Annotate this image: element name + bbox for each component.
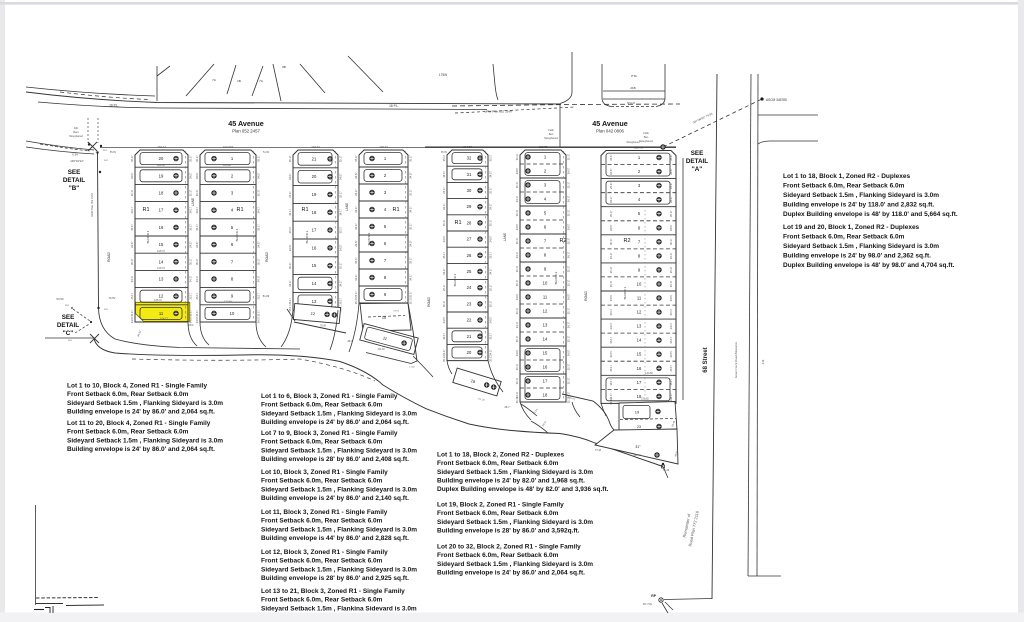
svg-text:123.46: 123.46 (223, 164, 231, 167)
svg-text:34.17: 34.17 (257, 275, 261, 282)
svg-text:34.17: 34.17 (189, 206, 193, 213)
svg-text:Front Setback 6.0m, Rear Setba: Front Setback 6.0m, Rear Setback 6.0m (437, 552, 559, 559)
svg-text:35.17: 35.17 (669, 210, 673, 217)
svg-text:34.57: 34.57 (515, 293, 519, 300)
svg-text:SEE: SEE (62, 314, 75, 321)
svg-text:34.57: 34.57 (609, 294, 613, 301)
svg-text:ASCM 345785: ASCM 345785 (766, 98, 787, 102)
svg-text:25.17: 25.17 (609, 365, 613, 372)
svg-text:35.17: 35.17 (189, 224, 193, 231)
svg-text:34.17: 34.17 (288, 209, 292, 216)
svg-text:34.17: 34.17 (409, 274, 413, 281)
svg-text:Sideyard Setback 1.5m , Flanki: Sideyard Setback 1.5m , Flanking Sideyar… (261, 526, 417, 533)
svg-text:35.17: 35.17 (130, 310, 134, 317)
svg-text:13: 13 (543, 323, 548, 328)
svg-text:Duplex Building envelope is 48: Duplex Building envelope is 48' by 82.0'… (437, 486, 609, 493)
svg-text:RP: RP (651, 594, 656, 598)
svg-text:77.43: 77.43 (595, 449, 602, 452)
svg-text:25.17: 25.17 (515, 363, 519, 370)
svg-text:24.17: 24.17 (609, 322, 613, 329)
svg-text:34.17: 34.17 (489, 203, 493, 210)
svg-text:Lot 1 to 6, Block 3, Zoned R1: Lot 1 to 6, Block 3, Zoned R1 - Single F… (261, 393, 398, 400)
svg-text:14: 14 (637, 338, 642, 343)
svg-text:135.72: 135.72 (154, 299, 162, 302)
svg-text:134.36: 134.36 (377, 348, 385, 351)
svg-text:35.17: 35.17 (669, 379, 673, 386)
svg-text:11: 11 (637, 296, 642, 301)
svg-text:35.17: 35.17 (354, 155, 358, 162)
svg-text:24.57: 24.57 (288, 244, 292, 251)
svg-text:Sloughaned: Sloughaned (639, 139, 653, 143)
svg-text:34.17: 34.17 (567, 195, 571, 202)
svg-text:34.57: 34.57 (339, 173, 343, 180)
svg-text:URW Plan 052 2178: URW Plan 052 2178 (90, 193, 94, 217)
svg-text:Lot 1 to 10, Block 4, Zoned R1: Lot 1 to 10, Block 4, Zoned R1 - Single … (67, 383, 208, 390)
svg-text:Plan 042 0806: Plan 042 0806 (596, 129, 624, 134)
svg-text:18: 18 (543, 393, 548, 398)
svg-text:104.007: 104.007 (223, 145, 234, 149)
svg-text:45 Avenue: 45 Avenue (228, 119, 263, 128)
svg-text:10: 10 (382, 316, 386, 320)
svg-text:BLOCK 3: BLOCK 3 (367, 232, 371, 245)
svg-text:34.17: 34.17 (339, 280, 343, 287)
svg-text:24.57: 24.57 (442, 235, 446, 242)
svg-text:17: 17 (159, 208, 164, 213)
svg-text:34.17: 34.17 (130, 275, 134, 282)
svg-text:BLOCK 4: BLOCK 4 (146, 230, 150, 243)
svg-text:35.17: 35.17 (409, 155, 413, 162)
svg-text:24.17: 24.17 (489, 349, 493, 356)
svg-text:104.33: 104.33 (311, 145, 320, 149)
svg-text:35.17: 35.17 (257, 155, 261, 162)
svg-text:Sideyard Setback 1.5m , Flanki: Sideyard Setback 1.5m , Flanking Sideyar… (261, 410, 417, 417)
svg-text:73.74: 73.74 (393, 311, 399, 313)
svg-text:25.17: 25.17 (130, 189, 134, 196)
svg-text:25.17: 25.17 (339, 191, 343, 198)
svg-text:34.17: 34.17 (442, 268, 446, 275)
svg-text:Sideyard Setback 1.5m , Flanki: Sideyard Setback 1.5m , Flanking Sideyar… (67, 400, 223, 407)
svg-text:Front Setback 6.0m, Rear Setba: Front Setback 6.0m, Rear Setback 6.0m (261, 478, 383, 485)
svg-text:20: 20 (312, 174, 317, 179)
svg-text:123.46: 123.46 (224, 301, 232, 304)
svg-text:35.0V: 35.0V (441, 151, 448, 154)
svg-text:18 P.L.: 18 P.L. (389, 104, 399, 108)
svg-text:35.17: 35.17 (257, 310, 261, 317)
svg-text:35.17: 35.17 (609, 238, 613, 245)
svg-text:19: 19 (159, 173, 164, 178)
svg-text:35.17: 35.17 (515, 237, 519, 244)
svg-text:34.17: 34.17 (354, 274, 358, 281)
svg-text:74.5V: 74.5V (109, 296, 116, 300)
svg-text:34.57: 34.57 (257, 316, 261, 323)
svg-text:24.17: 24.17 (515, 321, 519, 328)
svg-text:35.17: 35.17 (567, 279, 571, 286)
svg-text:25.17: 25.17 (409, 189, 413, 196)
svg-text:Building envelope is 24' by 86: Building envelope is 24' by 86.0' and 2,… (261, 495, 409, 502)
svg-text:Government Road Allowance: Government Road Allowance (734, 341, 738, 378)
svg-text:25.17: 25.17 (669, 365, 673, 372)
svg-text:Front Setback 6.0m, Rear Setba: Front Setback 6.0m, Rear Setback 6.0m (437, 460, 559, 467)
svg-text:20: 20 (467, 350, 472, 355)
svg-text:Sideyard Setback 1.5m , Flanki: Sideyard Setback 1.5m , Flanking Sideyar… (437, 519, 593, 526)
svg-text:Front Setback 6.0m, Rear Setba: Front Setback 6.0m, Rear Setback 6.0m (261, 518, 383, 525)
svg-text:34.17: 34.17 (489, 268, 493, 275)
svg-text:34.17: 34.17 (339, 209, 343, 216)
svg-text:34.57: 34.57 (567, 167, 571, 174)
svg-text:Lot 1 to 18, Block 1, Zoned R2: Lot 1 to 18, Block 1, Zoned R2 - Duplexe… (783, 173, 911, 180)
svg-text:34.57: 34.57 (669, 294, 673, 301)
svg-text:21: 21 (467, 334, 472, 339)
svg-text:125.72: 125.72 (157, 267, 165, 270)
svg-text:24.57: 24.57 (669, 224, 673, 231)
svg-text:35.17: 35.17 (339, 262, 343, 269)
svg-text:104.17: 104.17 (157, 145, 166, 149)
svg-text:Building envelope is 24' by 86: Building envelope is 24' by 86.0' and 2,… (67, 446, 215, 453)
svg-text:10: 10 (637, 282, 642, 287)
svg-text:R1: R1 (142, 207, 149, 213)
svg-text:ROAD: ROAD (584, 291, 588, 301)
svg-text:MSCM: MSCM (627, 102, 635, 105)
svg-text:Lot 20 to 32, Block 2, Zoned R: Lot 20 to 32, Block 2, Zoned R1 - Single… (437, 544, 581, 551)
svg-text:24.57: 24.57 (567, 223, 571, 230)
svg-text:25.17: 25.17 (567, 181, 571, 188)
svg-text:23: 23 (637, 425, 641, 429)
svg-text:Lot 12, Block 3, Zoned R1 - Si: Lot 12, Block 3, Zoned R1 - Single Famil… (261, 549, 388, 556)
svg-text:URW Plan 052 3149: URW Plan 052 3149 (484, 110, 512, 114)
svg-text:Sideyard Setback 1.5m , Flanki: Sideyard Setback 1.5m , Flanking Sideyar… (783, 192, 939, 199)
svg-text:PG 7VA: PG 7VA (643, 602, 652, 606)
svg-text:R2: R2 (623, 238, 630, 244)
svg-text:25.17: 25.17 (567, 363, 571, 370)
svg-text:35.17: 35.17 (130, 258, 134, 265)
svg-text:24.57: 24.57 (257, 241, 261, 248)
svg-text:34.57: 34.57 (442, 171, 446, 178)
svg-text:Falls: Falls (548, 128, 554, 132)
svg-text:Building envelope is 24' by 11: Building envelope is 24' by 118.0' and 2… (783, 202, 934, 209)
svg-text:25.17: 25.17 (442, 187, 446, 194)
svg-text:21B: 21B (630, 86, 635, 90)
svg-text:24.57: 24.57 (195, 241, 199, 248)
svg-text:SEE: SEE (691, 150, 704, 157)
svg-text:LANE: LANE (503, 233, 507, 241)
svg-text:16: 16 (159, 225, 164, 230)
svg-text:6.34: 6.34 (72, 153, 78, 157)
svg-text:35.17: 35.17 (195, 224, 199, 231)
svg-text:34.57: 34.57 (515, 349, 519, 356)
svg-text:25.17: 25.17 (195, 292, 199, 299)
svg-text:BLOCK 2: BLOCK 2 (554, 271, 558, 284)
svg-text:35.17: 35.17 (515, 153, 519, 160)
svg-text:R1: R1 (301, 207, 308, 213)
svg-text:25.17: 25.17 (195, 189, 199, 196)
svg-text:35.17: 35.17 (515, 307, 519, 314)
svg-text:BLOCK 4: BLOCK 4 (235, 228, 239, 241)
svg-text:25.17: 25.17 (189, 189, 193, 196)
svg-text:R1: R1 (236, 207, 243, 213)
svg-text:19: 19 (635, 410, 640, 415)
svg-text:35.17: 35.17 (489, 333, 493, 340)
svg-text:12: 12 (543, 309, 548, 314)
svg-text:Building envelope is 28' by 86: Building envelope is 28' by 86.0' and 2,… (261, 575, 409, 582)
svg-text:Front Setback 6.0m, Rear Setba: Front Setback 6.0m, Rear Setback 6.0m (437, 510, 559, 517)
svg-text:35.17: 35.17 (354, 257, 358, 264)
svg-text:Sloughaned: Sloughaned (69, 134, 83, 138)
svg-text:15: 15 (312, 263, 317, 268)
svg-text:16: 16 (312, 245, 317, 250)
svg-text:35.17: 35.17 (442, 252, 446, 259)
svg-text:125.72: 125.72 (157, 250, 165, 253)
svg-text:24.57: 24.57 (189, 241, 193, 248)
svg-text:35.17: 35.17 (669, 238, 673, 245)
svg-text:20: 20 (159, 156, 164, 161)
svg-text:35.17: 35.17 (195, 310, 199, 317)
svg-text:24.57: 24.57 (130, 241, 134, 248)
svg-text:34.17: 34.17 (442, 203, 446, 210)
svg-text:35.17: 35.17 (354, 223, 358, 230)
svg-text:DETAIL: DETAIL (57, 322, 79, 329)
svg-text:34.17: 34.17 (515, 195, 519, 202)
svg-text:71.22: 71.22 (663, 468, 670, 472)
svg-text:35.17: 35.17 (489, 154, 493, 161)
svg-text:35.17: 35.17 (339, 155, 343, 162)
svg-text:34.17: 34.17 (409, 206, 413, 213)
svg-text:35.17: 35.17 (130, 155, 134, 162)
svg-text:34.57: 34.57 (489, 316, 493, 323)
svg-text:34.57: 34.57 (567, 293, 571, 300)
svg-text:Lot 19, Block 2, Zoned R1 - Si: Lot 19, Block 2, Zoned R1 - Single Famil… (437, 502, 564, 509)
svg-text:35.17: 35.17 (288, 155, 292, 162)
svg-text:24.57: 24.57 (409, 240, 413, 247)
svg-text:Sideyard Setback 1.5m , Flanki: Sideyard Setback 1.5m , Flanking Sideyar… (67, 437, 223, 444)
svg-text:24.17: 24.17 (669, 322, 673, 329)
svg-text:35.17: 35.17 (130, 224, 134, 231)
svg-text:104.17: 104.17 (160, 318, 168, 321)
svg-text:Sloughaned: Sloughaned (626, 141, 640, 144)
svg-text:35.17: 35.17 (609, 280, 613, 287)
svg-text:34.57: 34.57 (130, 316, 134, 323)
svg-text:25.17: 25.17 (669, 266, 673, 273)
svg-text:35.17: 35.17 (567, 209, 571, 216)
svg-text:26.7: 26.7 (504, 405, 510, 409)
svg-text:35.17: 35.17 (189, 155, 193, 162)
svg-text:Building envelope is 44' by 86: Building envelope is 44' by 86.0' and 2,… (261, 535, 409, 542)
svg-text:BLOCK 3: BLOCK 3 (305, 230, 309, 243)
svg-text:Sideyard Setback 1.5m , Flanki: Sideyard Setback 1.5m , Flanking Sideyar… (437, 469, 593, 476)
svg-text:35.17: 35.17 (195, 155, 199, 162)
svg-text:16: 16 (543, 365, 548, 370)
svg-text:11: 11 (543, 295, 548, 300)
svg-text:24.17: 24.17 (442, 349, 446, 356)
svg-text:24.17: 24.17 (567, 321, 571, 328)
svg-text:35.17: 35.17 (609, 336, 613, 343)
svg-text:35.17: 35.17 (567, 307, 571, 314)
svg-text:34.17: 34.17 (567, 251, 571, 258)
svg-text:Front Setback 6.0m, Rear Setba: Front Setback 6.0m, Rear Setback 6.0m (261, 597, 383, 604)
svg-text:25.17: 25.17 (609, 266, 613, 273)
svg-text:Lot 10, Block 3, Zoned R1 - Si: Lot 10, Block 3, Zoned R1 - Single Famil… (261, 469, 388, 476)
svg-text:35.17: 35.17 (515, 396, 519, 403)
svg-text:25.17: 25.17 (567, 265, 571, 272)
svg-text:Building envelope is 24' by 86: Building envelope is 24' by 86.0' and 2,… (67, 408, 215, 415)
svg-text:133.50: 133.50 (645, 372, 653, 375)
svg-text:25.17: 25.17 (515, 181, 519, 188)
svg-text:Sideyard Setback 1.5m , Flanki: Sideyard Setback 1.5m , Flanking Sideyar… (261, 447, 417, 454)
svg-text:31: 31 (467, 172, 472, 177)
svg-text:ROAD: ROAD (265, 252, 269, 262)
svg-text:68 Street: 68 Street (703, 347, 709, 372)
svg-text:"A": "A" (692, 166, 703, 173)
svg-text:Building envelope is 24' by 98: Building envelope is 24' by 98.0' and 2,… (783, 253, 931, 260)
svg-text:12: 12 (159, 294, 164, 299)
svg-text:18: 18 (312, 210, 317, 215)
svg-text:35.17: 35.17 (515, 209, 519, 216)
svg-text:35.17: 35.17 (567, 335, 571, 342)
svg-text:Duplex Building envelope is 48: Duplex Building envelope is 48' by 98.0'… (783, 262, 955, 269)
svg-text:BLOCK 1: BLOCK 1 (623, 286, 627, 299)
svg-text:13: 13 (637, 324, 642, 329)
svg-text:35.17: 35.17 (515, 377, 519, 384)
svg-text:175W: 175W (439, 73, 447, 77)
svg-text:35.17: 35.17 (609, 398, 613, 405)
svg-text:45 Avenue: 45 Avenue (592, 119, 627, 128)
svg-text:14: 14 (312, 281, 317, 286)
svg-text:F&I: F&I (74, 126, 78, 130)
svg-text:25.17: 25.17 (409, 291, 413, 298)
svg-text:Front Setback 6.0m, Rear Setba: Front Setback 6.0m, Rear Setback 6.0m (783, 234, 905, 241)
svg-text:1B: 1B (237, 79, 241, 83)
svg-text:130°16'22": 130°16'22" (70, 159, 84, 163)
svg-text:35.17: 35.17 (669, 280, 673, 287)
svg-text:35.17: 35.17 (288, 226, 292, 233)
svg-text:34.57: 34.57 (189, 172, 193, 179)
svg-text:78.56: 78.56 (320, 325, 327, 328)
svg-text:35.17: 35.17 (567, 237, 571, 244)
svg-text:DETAIL: DETAIL (686, 158, 708, 165)
svg-text:35.17: 35.17 (669, 308, 673, 315)
svg-text:30: 30 (467, 188, 472, 193)
svg-text:11: 11 (159, 311, 164, 316)
svg-text:24.57: 24.57 (515, 223, 519, 230)
svg-text:12: 12 (637, 310, 642, 315)
svg-text:"C": "C" (63, 330, 74, 337)
svg-text:25.17: 25.17 (257, 292, 261, 299)
svg-text:34.57: 34.57 (515, 167, 519, 174)
svg-text:Ban: Ban (549, 132, 554, 136)
svg-text:34.57: 34.57 (609, 168, 613, 175)
svg-text:25.17: 25.17 (339, 298, 343, 305)
svg-text:35.17: 35.17 (257, 224, 261, 231)
svg-text:51.09: 51.09 (263, 294, 270, 298)
svg-text:35.17: 35.17 (442, 154, 446, 161)
svg-text:34.57: 34.57 (442, 316, 446, 323)
svg-text:34.57: 34.57 (189, 316, 193, 323)
svg-text:26: 26 (467, 253, 472, 258)
svg-text:Front Setback 6.0m, Rear Setba: Front Setback 6.0m, Rear Setback 6.0m (261, 558, 383, 565)
svg-text:34.17: 34.17 (195, 206, 199, 213)
svg-text:24: 24 (467, 285, 472, 290)
svg-text:34.17: 34.17 (189, 275, 193, 282)
svg-text:35.17: 35.17 (442, 333, 446, 340)
svg-text:34.17: 34.17 (288, 280, 292, 287)
svg-text:17: 17 (312, 228, 317, 233)
svg-text:35.17: 35.17 (195, 258, 199, 265)
svg-text:35.17: 35.17 (442, 300, 446, 307)
svg-text:24.57: 24.57 (354, 240, 358, 247)
svg-text:25.17: 25.17 (354, 189, 358, 196)
svg-text:LANE: LANE (191, 198, 195, 206)
svg-text:25.17: 25.17 (669, 182, 673, 189)
svg-text:34.57: 34.57 (130, 172, 134, 179)
svg-text:35.17: 35.17 (409, 257, 413, 264)
svg-text:35.17: 35.17 (489, 355, 493, 362)
svg-text:35.17: 35.17 (609, 210, 613, 217)
svg-text:34.17: 34.17 (515, 251, 519, 258)
svg-text:35.17: 35.17 (489, 300, 493, 307)
svg-text:35.17: 35.17 (609, 154, 613, 161)
svg-text:13: 13 (159, 277, 164, 282)
svg-text:PTA: PTA (631, 74, 637, 78)
svg-text:Falls: Falls (643, 131, 649, 135)
svg-text:35.17: 35.17 (669, 154, 673, 161)
svg-text:35.17: 35.17 (515, 335, 519, 342)
svg-text:34.57: 34.57 (669, 168, 673, 175)
svg-text:25.17: 25.17 (257, 189, 261, 196)
svg-text:35.17: 35.17 (669, 336, 673, 343)
svg-text:35.17: 35.17 (489, 252, 493, 259)
svg-text:R1: R1 (392, 207, 399, 213)
svg-text:14: 14 (159, 259, 164, 264)
svg-text:34.57: 34.57 (195, 316, 199, 323)
svg-text:Building envelope is 24' by 86: Building envelope is 24' by 86.0' and 2,… (437, 570, 585, 577)
svg-text:Plan 052 2457: Plan 052 2457 (232, 129, 260, 134)
svg-text:Sideyard Setback 1.5m , Flanki: Sideyard Setback 1.5m , Flanking Sideyar… (261, 566, 417, 573)
svg-text:24.57: 24.57 (489, 235, 493, 242)
svg-text:124.52: 124.52 (157, 164, 165, 167)
svg-text:Lot 13 to 21, Block 3, Zoned R: Lot 13 to 21, Block 3, Zoned R1 - Single… (261, 588, 405, 595)
svg-text:7A: 7A (212, 78, 216, 82)
svg-text:Building envelope is 24' by 86: Building envelope is 24' by 86.0' and 2,… (261, 419, 409, 426)
svg-text:Lot 11, Block 3, Zoned R1 - Si: Lot 11, Block 3, Zoned R1 - Single Famil… (261, 509, 388, 516)
svg-text:Front Setback 6.0m, Rear Setba: Front Setback 6.0m, Rear Setback 6.0m (67, 391, 189, 398)
svg-text:Lot 19 and 20, Block 1, Zoned: Lot 19 and 20, Block 1, Zoned R2 - Duple… (783, 224, 920, 231)
svg-text:Barn: Barn (73, 130, 79, 134)
svg-text:Sideyard Setback 1.5m , Flanki: Sideyard Setback 1.5m , Flanking Sideyar… (437, 561, 593, 568)
svg-text:35.17: 35.17 (515, 279, 519, 286)
svg-text:34.17: 34.17 (354, 206, 358, 213)
svg-text:7A: 7A (259, 79, 263, 83)
svg-text:Sloughaned: Sloughaned (544, 136, 558, 140)
svg-text:LANE: LANE (345, 203, 349, 211)
svg-text:35.17: 35.17 (257, 258, 261, 265)
svg-text:ROAD: ROAD (427, 297, 431, 307)
svg-text:Front Setback 6.0m, Rear Setba: Front Setback 6.0m, Rear Setback 6.0m (783, 183, 905, 190)
svg-text:25.17: 25.17 (442, 284, 446, 291)
svg-text:25.17: 25.17 (130, 292, 134, 299)
svg-text:15: 15 (159, 242, 164, 247)
svg-text:35.17: 35.17 (189, 310, 193, 317)
svg-text:35.17: 35.17 (489, 219, 493, 226)
svg-text:35.17: 35.17 (339, 226, 343, 233)
svg-text:35.17: 35.17 (567, 377, 571, 384)
svg-text:34.57: 34.57 (669, 350, 673, 357)
svg-text:25.17: 25.17 (288, 298, 292, 305)
svg-text:17.82: 17.82 (409, 367, 415, 369)
svg-text:35.17: 35.17 (354, 297, 358, 304)
svg-text:19 P.L.: 19 P.L. (109, 104, 119, 108)
svg-text:25.17: 25.17 (489, 284, 493, 291)
svg-text:32: 32 (467, 156, 472, 161)
svg-text:34.57: 34.57 (609, 350, 613, 357)
